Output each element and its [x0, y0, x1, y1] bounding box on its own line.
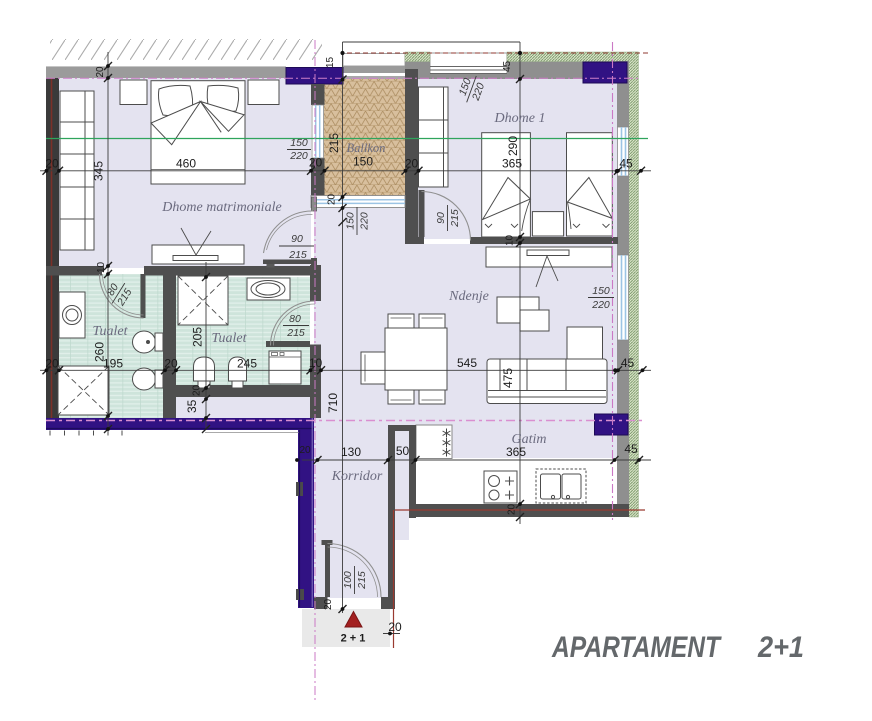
svg-text:215: 215: [288, 249, 307, 261]
svg-text:20: 20: [45, 357, 59, 371]
svg-text:710: 710: [326, 393, 340, 413]
svg-text:45: 45: [502, 60, 513, 72]
svg-text:20: 20: [323, 598, 334, 610]
svg-text:Tualet: Tualet: [211, 331, 247, 346]
svg-text:150: 150: [290, 137, 308, 149]
svg-text:150: 150: [345, 212, 357, 230]
svg-text:215: 215: [449, 209, 461, 228]
svg-text:Ballkon: Ballkon: [347, 141, 386, 155]
svg-text:20: 20: [327, 193, 338, 205]
svg-text:220: 220: [591, 299, 610, 311]
svg-text:APARTAMENT: APARTAMENT: [551, 631, 722, 664]
svg-text:Dhome 1: Dhome 1: [494, 111, 546, 126]
svg-text:130: 130: [341, 445, 361, 459]
svg-text:220: 220: [359, 212, 371, 231]
svg-text:215: 215: [356, 571, 368, 590]
svg-text:10: 10: [309, 356, 323, 370]
svg-text:10: 10: [505, 234, 516, 246]
svg-text:45: 45: [624, 442, 638, 456]
svg-text:45: 45: [621, 356, 635, 370]
svg-text:290: 290: [506, 136, 520, 156]
svg-text:20: 20: [299, 445, 311, 456]
svg-text:Dhome matrimoniale: Dhome matrimoniale: [161, 200, 281, 215]
svg-text:20: 20: [309, 156, 323, 170]
svg-text:90: 90: [435, 212, 447, 224]
svg-text:2+1: 2+1: [757, 631, 804, 664]
svg-text:35: 35: [185, 399, 199, 413]
svg-text:90: 90: [291, 233, 303, 245]
svg-text:365: 365: [506, 445, 526, 459]
svg-text:215: 215: [327, 133, 341, 153]
svg-text:100: 100: [342, 571, 354, 589]
svg-text:45: 45: [619, 156, 633, 170]
svg-text:215: 215: [286, 327, 305, 339]
svg-text:20: 20: [192, 384, 203, 396]
svg-text:345: 345: [92, 161, 106, 181]
svg-text:150: 150: [353, 155, 373, 169]
svg-text:Korridor: Korridor: [331, 469, 383, 484]
svg-text:150: 150: [592, 285, 610, 297]
svg-text:460: 460: [176, 156, 196, 170]
svg-text:10: 10: [96, 261, 107, 273]
svg-text:80: 80: [289, 313, 301, 325]
svg-text:205: 205: [191, 327, 205, 347]
svg-text:475: 475: [501, 368, 515, 388]
svg-text:220: 220: [289, 150, 308, 162]
svg-text:20: 20: [45, 156, 59, 170]
svg-text:20: 20: [507, 503, 518, 515]
svg-text:545: 545: [457, 356, 477, 370]
svg-text:20: 20: [164, 357, 178, 371]
svg-text:Gatim: Gatim: [512, 432, 547, 447]
svg-text:Ndenje: Ndenje: [448, 289, 489, 304]
svg-text:20: 20: [405, 156, 419, 170]
svg-text:15: 15: [325, 56, 336, 68]
svg-text:Tualet: Tualet: [92, 324, 128, 339]
svg-text:2 + 1: 2 + 1: [341, 633, 366, 645]
svg-text:365: 365: [502, 156, 522, 170]
svg-text:245: 245: [237, 357, 257, 371]
svg-text:20: 20: [95, 66, 106, 78]
svg-text:20: 20: [388, 620, 402, 634]
svg-text:260: 260: [93, 342, 107, 362]
svg-text:50: 50: [396, 444, 410, 458]
